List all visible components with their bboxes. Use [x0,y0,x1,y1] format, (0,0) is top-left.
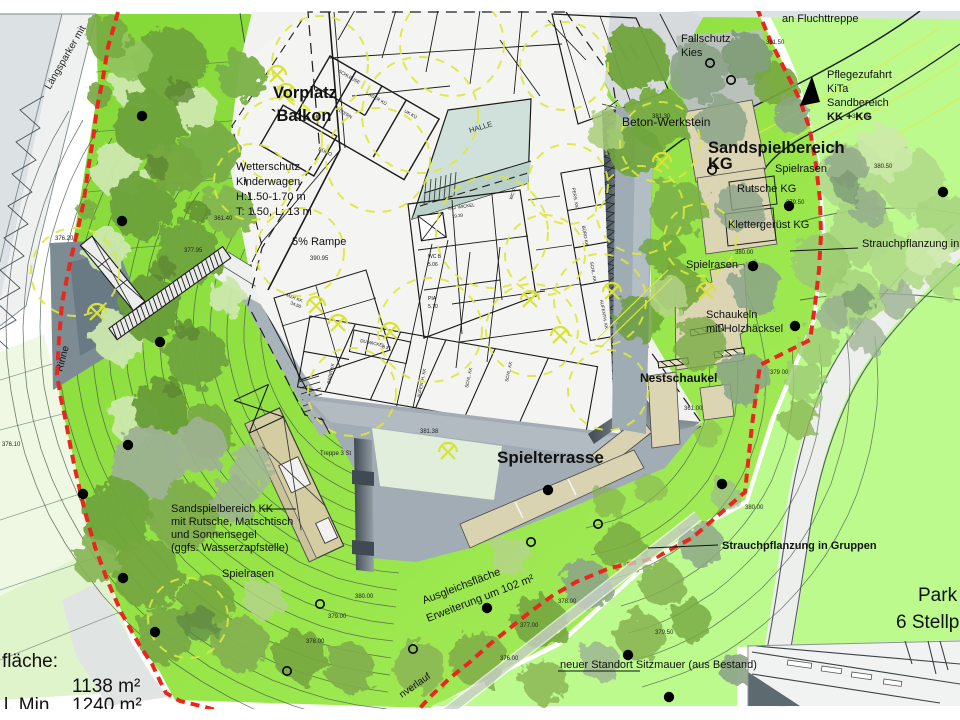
svg-text:`Balkon: `Balkon [271,107,332,125]
svg-text:378.00: 378.00 [306,639,325,645]
svg-text:und Sonnensegel: und Sonnensegel [171,529,257,541]
svg-text:an Fluchttreppe: an Fluchttreppe [782,13,858,25]
svg-text:neuer Standort Sitzmauer (aus: neuer Standort Sitzmauer (aus Bestand) [560,659,757,671]
svg-text:376.20: 376.20 [55,236,74,242]
svg-text:380.00: 380.00 [355,594,374,600]
svg-text:Sandspielbereich KK: Sandspielbereich KK [171,503,274,515]
svg-text:fläche:: fläche: [2,651,58,672]
svg-text:mit Holzhäcksel: mit Holzhäcksel [706,323,783,335]
svg-text:Rutsche KG: Rutsche KG [737,183,796,195]
svg-text:381.00: 381.00 [852,114,871,120]
svg-text:Kies: Kies [681,47,703,59]
svg-text:Park: Park [918,585,958,606]
svg-text:378.00: 378.00 [558,599,577,605]
svg-text:361.40: 361.40 [214,216,233,222]
svg-text:380.00: 380.00 [735,250,754,256]
svg-text:377.00: 377.00 [520,623,539,629]
svg-text:(ggfs. Wasserzapfstelle): (ggfs. Wasserzapfstelle) [171,542,289,554]
svg-text:KG: KG [708,155,733,173]
svg-text:376.00: 376.00 [500,656,519,662]
svg-text:mit Rutsche, Matschtisch: mit Rutsche, Matschtisch [171,516,293,528]
svg-text:381.30: 381.30 [652,114,671,120]
svg-text:Spielrasen: Spielrasen [222,568,274,580]
svg-text:Spielterrasse: Spielterrasse [497,448,604,467]
svg-text:PIA: PIA [428,296,437,302]
svg-text:Strauchpflanzung in G: Strauchpflanzung in G [862,238,960,250]
svg-text:380.00: 380.00 [745,505,764,511]
svg-text:5.06: 5.06 [428,262,438,268]
svg-text:361.00: 361.00 [684,406,703,412]
svg-text:381.38: 381.38 [420,429,439,435]
svg-text:Klettergerüst KG: Klettergerüst KG [728,219,809,231]
svg-text:5% Rampe: 5% Rampe [292,236,346,248]
svg-text:Strauchpflanzung in Gruppen: Strauchpflanzung in Gruppen [722,540,877,552]
svg-text:381.50: 381.50 [766,40,785,46]
svg-text:Treppe 3 St: Treppe 3 St [320,451,351,457]
svg-text:Sandbereich: Sandbereich [827,97,889,109]
svg-text:379.50: 379.50 [786,200,805,206]
svg-text:379.00: 379.00 [328,614,347,620]
svg-text:Wetterschutz: Wetterschutz [236,161,300,173]
svg-text:KiTa: KiTa [827,83,849,95]
svg-text:6 Stellp: 6 Stellp [896,612,959,633]
svg-text:379 00: 379 00 [770,370,789,376]
svg-text:H:1.50-1.70 m: H:1.50-1.70 m [236,191,306,203]
svg-text:Fallschutz: Fallschutz [681,33,731,45]
svg-text:380.50: 380.50 [874,164,893,170]
svg-text:T: 1.50, L: 13 m: T: 1.50, L: 13 m [236,206,312,218]
svg-text:Spielrasen: Spielrasen [686,259,738,271]
svg-text:1138 m²: 1138 m² [72,676,140,697]
svg-text:Vorplatz: Vorplatz [273,84,337,102]
svg-text:Pflegezufahrt: Pflegezufahrt [827,69,892,81]
svg-text:Schaukeln: Schaukeln [706,309,757,321]
svg-text:376.10: 376.10 [2,442,21,448]
svg-text:379.50: 379.50 [655,630,674,636]
svg-text:Spielrasen: Spielrasen [775,163,827,175]
svg-text:377.95: 377.95 [184,248,203,254]
svg-text:390.95: 390.95 [310,256,329,262]
svg-text:Kinderwagen: Kinderwagen [236,176,300,188]
svg-text:WC B: WC B [428,254,442,260]
svg-text:5.70: 5.70 [428,304,438,310]
svg-text:Nestschaukel: Nestschaukel [640,371,717,385]
